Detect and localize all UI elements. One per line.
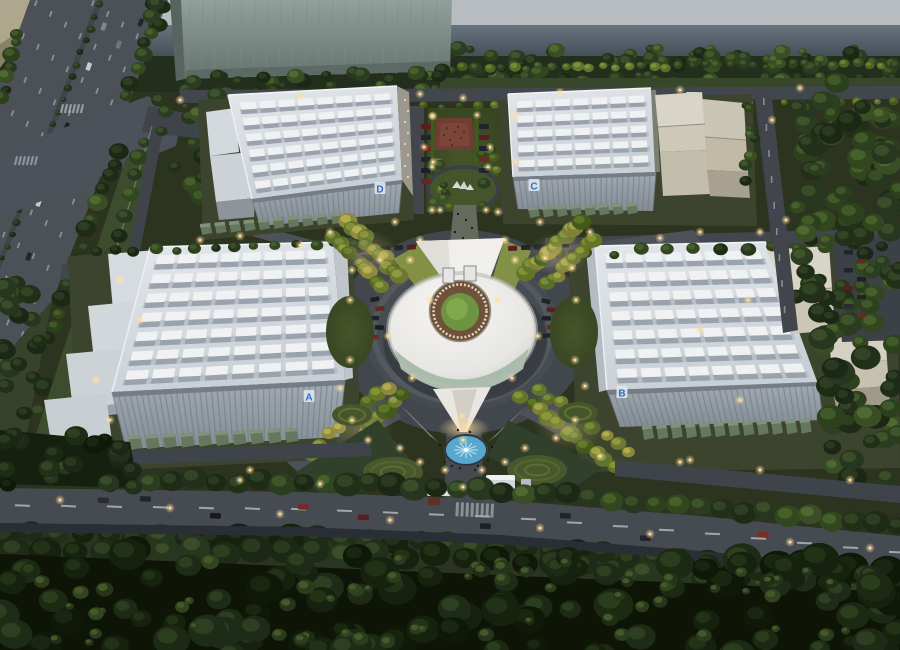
svg-text:B: B [618, 389, 625, 400]
svg-text:C: C [530, 182, 537, 193]
svg-text:D: D [376, 185, 383, 196]
svg-text:A: A [305, 393, 312, 404]
